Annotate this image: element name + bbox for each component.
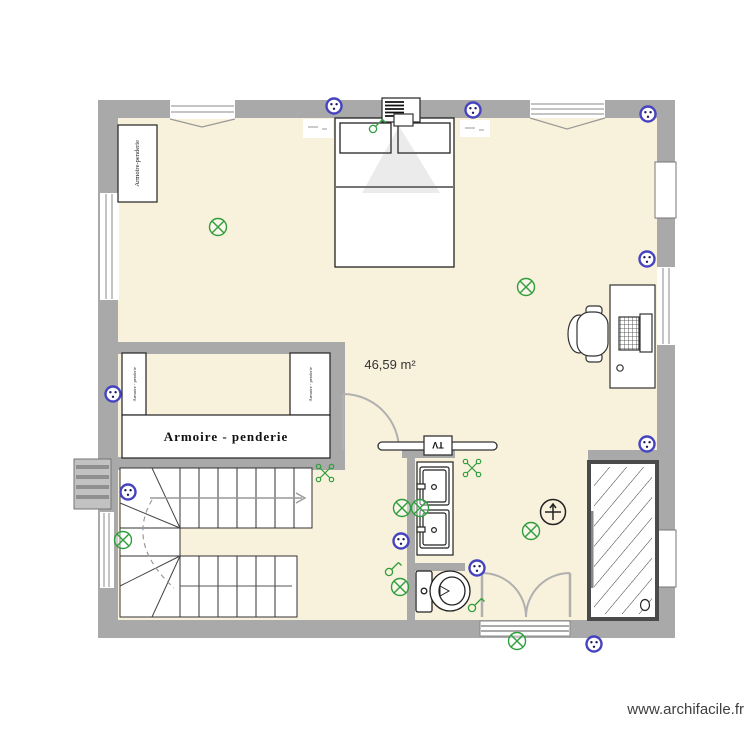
french-door-sill[interactable] xyxy=(480,621,570,636)
outlet-icon[interactable] xyxy=(466,103,481,118)
shower-drain xyxy=(641,600,650,611)
outlet-icon[interactable] xyxy=(587,637,602,652)
keyboard xyxy=(619,317,639,350)
armoire-side-right-label[interactable]: Armoire - penderie xyxy=(290,353,330,415)
opening-right-upper[interactable] xyxy=(655,162,676,218)
spot-icon[interactable] xyxy=(316,464,333,481)
plan-graphics xyxy=(0,0,750,750)
outlet-icon[interactable] xyxy=(641,107,656,122)
armoire-side-left-label[interactable]: Armoire - penderie xyxy=(122,353,146,415)
door-double[interactable] xyxy=(482,573,570,617)
outlet-label xyxy=(460,120,490,137)
outlet-icon[interactable] xyxy=(640,252,655,267)
floor-plan-canvas: 46,59 m² Armoire - penderie Armoire-pend… xyxy=(0,0,750,750)
window-left-upper[interactable] xyxy=(100,193,119,300)
ceiling_light-icon[interactable] xyxy=(509,633,526,650)
outlet-icon[interactable] xyxy=(106,387,121,402)
armoire-vertical-label[interactable]: Armoire-penderie xyxy=(118,125,157,202)
outlet-icon[interactable] xyxy=(394,534,409,549)
window-right-mid[interactable] xyxy=(657,267,675,345)
ceiling_light-icon[interactable] xyxy=(523,523,540,540)
outlet-icon[interactable] xyxy=(327,99,342,114)
ceiling_light-icon[interactable] xyxy=(412,500,429,517)
ceiling_light-icon[interactable] xyxy=(518,279,535,296)
mouse xyxy=(617,365,623,371)
shower-door xyxy=(591,511,594,588)
window-left-lower[interactable] xyxy=(100,512,114,588)
ceiling_light-icon[interactable] xyxy=(115,532,132,549)
outlet-icon[interactable] xyxy=(640,437,655,452)
room-area-label: 46,59 m² xyxy=(340,356,440,372)
shower[interactable] xyxy=(589,462,657,619)
desk[interactable] xyxy=(610,285,655,388)
ceiling_light-icon[interactable] xyxy=(392,579,409,596)
office-chair[interactable] xyxy=(568,306,608,362)
toilet[interactable] xyxy=(416,571,470,612)
window-top-right[interactable] xyxy=(530,98,605,129)
outlet-label xyxy=(303,119,333,138)
archifacile-watermark: www.archifacile.fr xyxy=(627,701,744,718)
tv-label: TV xyxy=(424,437,452,454)
fan_vent-icon[interactable] xyxy=(541,500,566,525)
spot-icon[interactable] xyxy=(463,459,480,476)
outlet-icon[interactable] xyxy=(121,485,136,500)
switch-icon[interactable] xyxy=(385,563,401,576)
window-top-left[interactable] xyxy=(170,100,235,127)
radiator[interactable] xyxy=(74,459,111,509)
ceiling_light-icon[interactable] xyxy=(394,500,411,517)
monitor xyxy=(640,314,652,352)
staircase[interactable] xyxy=(120,468,312,617)
ceiling_light-icon[interactable] xyxy=(210,219,227,236)
outlet-icon[interactable] xyxy=(470,561,485,576)
armoire-label[interactable]: Armoire - penderie xyxy=(122,415,330,458)
